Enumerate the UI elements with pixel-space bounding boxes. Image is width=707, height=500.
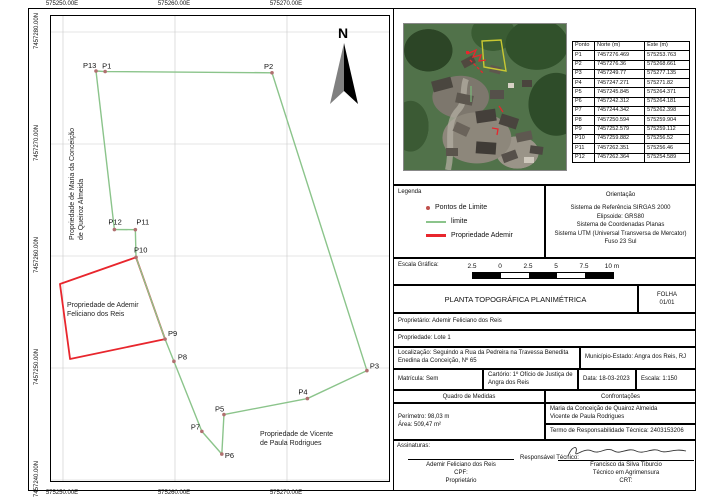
scale-bar-segment [557,273,585,278]
legend-item-label: limite [451,218,467,225]
tech-crt: CRT: [558,478,694,486]
table-row: P127457262.364575254.589 [573,153,690,162]
field-localizacao: Localização: Seguindo a Rua da Pedreira … [393,347,580,369]
scale-bar-segment [585,273,613,278]
field-municipio: Município-Estado: Angra dos Reis, RJ [580,347,696,369]
field-matricula: Matrícula: Sem [393,369,483,390]
orientation-line: Sistema de Coordenadas Planas [546,221,695,230]
table-row: P17457276.469575253.763 [573,51,690,60]
limit-point [172,360,176,364]
folha-box: FOLHA 01/01 [638,285,696,313]
table-row: P97457252.579575259.112 [573,125,690,134]
confrontacoes-names: Maria da Conceição de Quairoz Almeida Vi… [545,403,696,424]
legend-item: Pontos de Limite [426,204,487,211]
limit-point-label: P6 [225,451,234,460]
legend-item-label: Pontos de Limite [435,204,487,211]
legend-item: Propriedade Ademir [426,232,513,239]
scale-bar-segment [529,273,557,278]
limit-point-label: P9 [168,329,177,338]
legend-item-label: Propriedade Ademir [451,232,513,239]
table-row: P47457247.271575271.82 [573,79,690,88]
map-drawing: P1P2P3P4P5P6P7P8P9P10P11P12P13N [51,16,389,481]
table-row: P37457249.77575277.135 [573,69,690,78]
limit-point-label: P12 [108,218,121,227]
axis-label-east-bottom: 575260.00E [158,490,190,496]
folha-value: 01/01 [659,299,674,307]
table-row: P117457262.351575256.46 [573,144,690,153]
neighbor-label-vicente: Propriedade de Vicente de Paula Rodrigue… [260,431,333,448]
axis-label-north: 7457260.00N [34,237,40,273]
axis-label-east-bottom: 575270.00E [270,490,302,496]
scale-tick-label: 0 [498,263,502,270]
limit-point-label: P11 [136,218,149,227]
legend: Legenda Pontos de LimitelimitePropriedad… [393,185,545,258]
field-cartorio: Cartório: 1º Ofício de Justiça de Angra … [483,369,578,390]
termo-responsabilidade: Termo de Responsabilidade Técnica: 24031… [545,424,696,440]
col-header-este: Este (m) [645,42,690,51]
boundary-polygon [96,71,367,454]
axis-label-north: 7457280.00N [34,13,40,49]
confrontante-1: Maria da Conceição de Quairoz Almeida [550,406,691,414]
table-row: P57457245.845575264.371 [573,88,690,97]
field-propriedade: Propriedade: Lote 1 [393,330,696,347]
legend-point-icon [426,206,430,210]
limit-point [113,228,117,232]
field-proprietario: Proprietário: Ademir Feliciano dos Reis [393,313,696,330]
axis-label-north: 7457250.00N [34,349,40,385]
owner-signature-line [408,459,514,460]
scale-bar-segment [501,273,529,278]
table-row: P77457244.342575262.398 [573,107,690,116]
satellite-overlay [404,24,566,170]
axis-label-north: 7457240.00N [34,461,40,497]
owner-role: Proprietário [408,478,514,486]
limit-point-label: P7 [191,422,200,431]
graphic-scale-label: Escala Gráfica: [398,262,439,268]
limit-point-label: P1 [102,62,111,71]
owner-name: Ademir Feliciano dos Reis [408,462,514,470]
scale-tick-label: 2.5 [523,263,532,270]
limit-point-label: P3 [370,362,379,371]
field-data: Data: 18-03-2023 [578,369,636,390]
field-escala: Escala: 1:150 [636,369,696,390]
quadro-medidas-values: Perímetro: 98,03 m Área: 509,47 m² [393,403,545,440]
limit-point [200,430,204,434]
table-row: P27457276.36575268.661 [573,60,690,69]
axis-label-east-top: 575250.00E [46,1,78,7]
legend-green-line-icon [426,221,446,223]
scale-bar [472,272,614,279]
axis-label-east-bottom: 575250.00E [46,490,78,496]
confrontante-2: Vicente de Paula Rodrigues [550,414,691,422]
col-header-ponto: Ponto [573,42,595,51]
axis-label-east-top: 575270.00E [270,1,302,7]
scale-tick-label: 5 [554,263,558,270]
limit-point-label: P5 [215,405,224,414]
limit-point [306,397,310,401]
legend-title: Legenda [398,189,421,195]
tech-role: Técnico em Agrimensura [558,470,694,478]
legend-item: limite [426,218,467,225]
orientation-block: Orientação Sistema de Referência SIRGAS … [545,185,696,258]
graphic-scale: Escala Gráfica: 2.502.557.510 m [393,258,696,285]
table-row: P67457242.312575264.181 [573,97,690,106]
sheet-title: PLANTA TOPOGRÁFICA PLANIMÉTRICA [393,285,638,313]
limit-point [134,256,138,260]
neighbor-label-maria: Propriedade de Maria da Conceição de Que… [69,80,86,240]
limit-point [134,228,138,232]
scale-bar-segment [473,273,501,278]
orientation-line: Fuso 23 Sul [546,238,695,247]
orientation-line: Sistema de Referência SIRGAS 2000 [546,204,695,213]
scale-tick-label: 2.5 [467,263,476,270]
confrontacoes-header: Confrontações [545,390,696,403]
folha-label: FOLHA [657,291,677,299]
owner-cpf: CPF: [408,470,514,478]
limit-point [270,71,274,75]
axis-label-north: 7457270.00N [34,125,40,161]
quadro-medidas-header: Quadro de Medidas [393,390,545,403]
limit-point-label: P2 [264,62,273,71]
limit-point-label: P4 [298,388,307,397]
limit-point [365,369,369,373]
north-label: N [338,25,348,41]
satellite-image [403,23,567,171]
orientation-line: Elipsoide: GRS80 [546,213,695,222]
signature-scribble [562,443,692,460]
survey-sheet: 575250.00E575250.00E575260.00E575260.00E… [0,0,707,500]
orientation-line: Sistema UTM (Universal Transversa de Mer… [546,230,695,239]
area-value: Área: 509,47 m² [398,422,540,430]
tech-signature-line [558,460,694,461]
scale-tick-label: 7.5 [579,263,588,270]
map-area: P1P2P3P4P5P6P7P8P9P10P11P12P13N Propried… [50,15,390,482]
legend-red-line-icon [426,234,446,237]
axis-label-east-top: 575260.00E [158,1,190,7]
property-label-ademir: Propriedade de Ademir Feliciano dos Reis [67,302,139,319]
signatures-title: Assinaturas: [397,443,430,451]
table-row: P87457250.594575259.904 [573,116,690,125]
scale-tick-label: 10 m [605,263,619,270]
col-header-norte: Norte (m) [595,42,645,51]
limit-point [163,337,167,341]
north-arrow-icon [344,43,358,104]
table-row: P107457259.882575256.52 [573,134,690,143]
limit-point-label: P13 [83,61,96,70]
north-arrow-icon [330,43,344,104]
perimetro-value: Perímetro: 98,03 m [398,414,540,422]
tech-name: Francisco da Silva Tiburcio [558,462,694,470]
limit-point [220,452,224,456]
limit-point-label: P10 [134,245,147,254]
limit-point-label: P8 [178,352,187,361]
coordinate-table: Ponto Norte (m) Este (m) P17457276.46957… [572,41,690,163]
